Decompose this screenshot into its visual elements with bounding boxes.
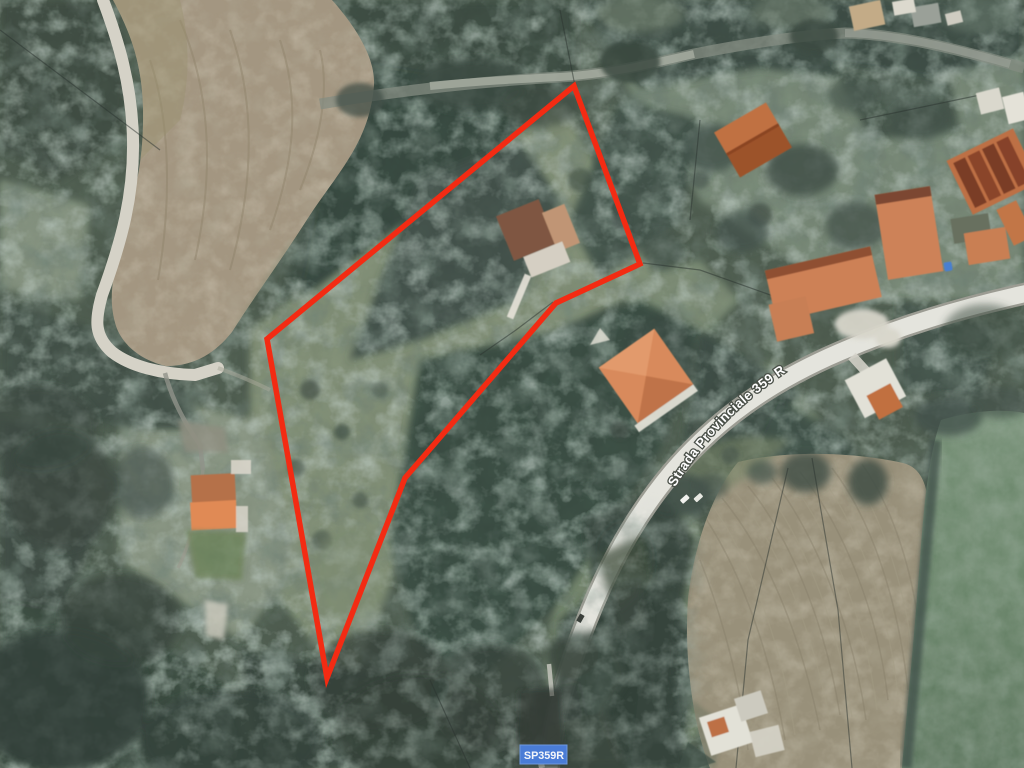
svg-text:SP359R: SP359R — [524, 750, 564, 762]
